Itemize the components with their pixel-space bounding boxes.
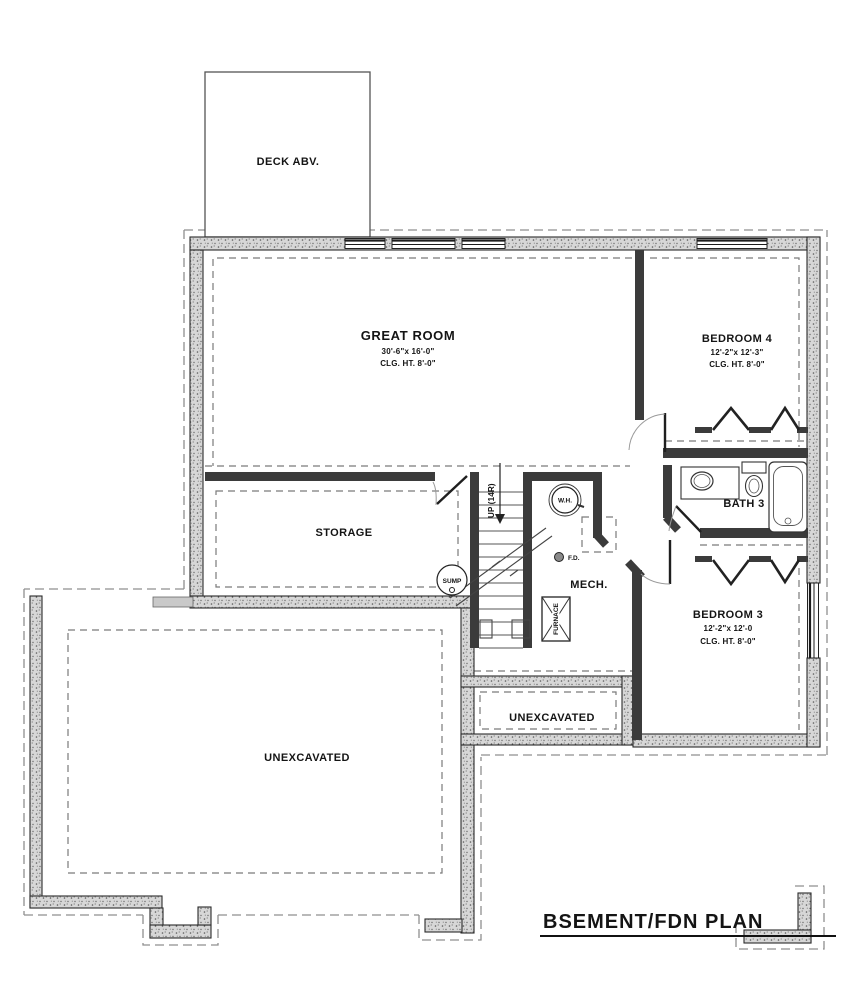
wall-greatroom-bedroom4 bbox=[635, 250, 644, 420]
floor-drain-icon: F.D. bbox=[555, 553, 580, 563]
wall-step-segment bbox=[153, 597, 193, 607]
wall-garage-south bbox=[30, 896, 162, 908]
window-bedroom3-egress bbox=[808, 583, 819, 658]
unexcavated-garage-label: UNEXCAVATED bbox=[264, 752, 350, 764]
great-room-label: GREAT ROOM bbox=[361, 328, 456, 343]
bifold-door-icon bbox=[713, 408, 749, 430]
bedroom4-dims: 12'-2"x 12'-3" bbox=[711, 348, 764, 357]
stair-up-label: UP (14R) bbox=[487, 483, 496, 518]
window-great-room-1 bbox=[345, 239, 385, 249]
bedroom3-ceiling: CLG. HT. 8'-0" bbox=[700, 637, 756, 646]
great-room-dims: 30'-6"x 16'-0" bbox=[382, 347, 435, 356]
wall-garage-east-foot bbox=[425, 919, 462, 932]
bathtub-icon bbox=[769, 462, 807, 532]
wall-notch-b bbox=[150, 925, 211, 938]
great-room-ceiling: CLG. HT. 8'-0" bbox=[380, 359, 436, 368]
unexcavated-center-label: UNEXCAVATED bbox=[509, 712, 595, 724]
water-heater-icon: W.H. bbox=[549, 484, 584, 516]
sump-pump-icon: SUMP bbox=[437, 565, 467, 595]
sump-label: SUMP bbox=[443, 578, 462, 585]
wall-right-upper bbox=[807, 237, 820, 583]
bedroom4-ceiling: CLG. HT. 8'-0" bbox=[709, 360, 765, 369]
wall-bath-west bbox=[663, 465, 672, 518]
wall-garage-east bbox=[461, 608, 474, 933]
basement-foundation-plan: DECK ABV. bbox=[0, 0, 857, 997]
bedroom3-door bbox=[641, 540, 670, 584]
stair-break-line bbox=[450, 528, 552, 606]
bedroom4-closet bbox=[695, 408, 808, 433]
water-heater-label: W.H. bbox=[558, 498, 572, 505]
furnace-label: FURNACE bbox=[553, 602, 560, 634]
bedroom3-label: BEDROOM 3 bbox=[693, 609, 763, 621]
wall-angled-cap-1 bbox=[596, 534, 606, 545]
wall-unexcavated-east bbox=[622, 676, 633, 745]
wall-bedroom3-west bbox=[632, 570, 642, 740]
furnace-icon: FURNACE bbox=[542, 597, 570, 641]
wall-mech-north bbox=[532, 472, 602, 481]
wall-mech-east-stub bbox=[593, 481, 602, 538]
room-labels: GREAT ROOM 30'-6"x 16'-0" CLG. HT. 8'-0"… bbox=[264, 328, 772, 764]
wall-right-lower bbox=[807, 658, 820, 747]
wall-bedroom3-south bbox=[633, 734, 820, 747]
bifold-door-icon bbox=[771, 560, 799, 582]
wall-angled-cap-3 bbox=[628, 562, 642, 577]
mech-label: MECH. bbox=[570, 579, 607, 591]
sheet-title: BSEMENT/FDN PLAN bbox=[543, 911, 763, 933]
bifold-door-icon bbox=[771, 408, 799, 430]
bifold-door-icon bbox=[713, 560, 749, 584]
toilet-icon bbox=[742, 462, 766, 497]
window-great-room-3 bbox=[462, 239, 505, 249]
mech-equipment: W.H. F.D. FURNACE bbox=[542, 484, 584, 641]
wall-unexcavated-south bbox=[461, 734, 633, 745]
bath3-label: BATH 3 bbox=[723, 498, 764, 510]
bath-fixtures bbox=[681, 462, 807, 532]
wall-stair-east bbox=[523, 472, 532, 648]
wall-storage-south bbox=[190, 596, 475, 608]
wall-greatroom-storage bbox=[205, 472, 435, 481]
arrow-down-icon bbox=[495, 514, 505, 524]
floor-drain-label: F.D. bbox=[568, 555, 580, 562]
wall-stair-west bbox=[470, 472, 479, 648]
window-bedroom4 bbox=[697, 239, 767, 249]
bedroom4-door bbox=[629, 413, 665, 452]
stair-up-arrow bbox=[495, 463, 505, 524]
window-great-room-2 bbox=[392, 239, 455, 249]
wall-unexcavated-north bbox=[461, 676, 633, 687]
bedroom4-label: BEDROOM 4 bbox=[702, 333, 773, 345]
wall-garage-west bbox=[30, 596, 42, 908]
deck-label: DECK ABV. bbox=[257, 156, 320, 168]
floor-plan-sheet: DECK ABV. bbox=[0, 0, 857, 997]
interior-dashed-lines bbox=[68, 258, 806, 873]
bedroom3-closet bbox=[695, 556, 808, 584]
deck-outline: DECK ABV. bbox=[205, 72, 370, 237]
wall-left bbox=[190, 250, 203, 596]
wall-notch-c bbox=[198, 907, 211, 925]
storage-label: STORAGE bbox=[316, 527, 373, 539]
wall-bath-north bbox=[663, 448, 808, 458]
bedroom3-dims: 12'-2"x 12'-0 bbox=[704, 624, 753, 633]
